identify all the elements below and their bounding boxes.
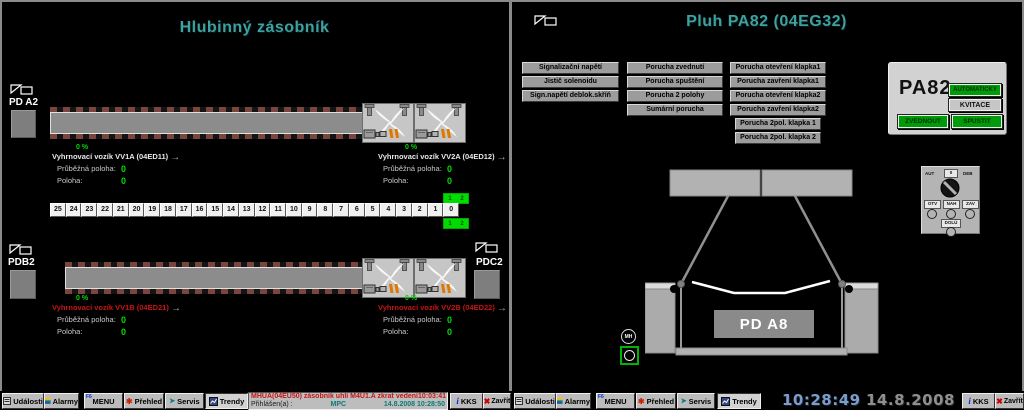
kks-button[interactable]: i KKS bbox=[962, 393, 995, 409]
trends-icon bbox=[209, 397, 218, 406]
close-label: Zavřít bbox=[491, 398, 510, 405]
close-label: Zavřít bbox=[1004, 398, 1023, 405]
scale-cell: 9 bbox=[302, 203, 318, 217]
cart-info-vv2a: 0 % Vyhrnovací vozík VV2A (04ED12) → Prů… bbox=[378, 144, 518, 185]
pos-value: 0 bbox=[121, 327, 126, 336]
scale-cell: 15 bbox=[207, 203, 223, 217]
service-button[interactable]: ➤ Servis bbox=[677, 393, 715, 409]
scale-cell: 7 bbox=[333, 203, 349, 217]
info-icon: i bbox=[456, 396, 459, 406]
beam-right bbox=[762, 170, 852, 196]
scale-cell: 5 bbox=[365, 203, 381, 217]
status-indicator: Jistič solenoidu bbox=[522, 76, 619, 88]
acknowledge-button[interactable]: KVITACE bbox=[948, 98, 1002, 112]
trends-button[interactable]: Trendy bbox=[717, 393, 761, 409]
discharge-carriage-vv2a[interactable] bbox=[414, 103, 466, 143]
close-button[interactable]: ✖ Zavřít bbox=[483, 393, 511, 409]
login-label: Přihlášen(a) : bbox=[251, 401, 293, 409]
service-label: Servis bbox=[177, 397, 200, 406]
zone-2: 2 bbox=[460, 221, 463, 227]
trends-icon bbox=[721, 397, 730, 406]
events-label: Události bbox=[525, 397, 555, 406]
beam-left bbox=[670, 170, 760, 196]
close-button[interactable] bbox=[965, 209, 975, 219]
events-icon bbox=[515, 397, 523, 405]
cart-label: Vyhrnovací vozík VV2A (04ED12) bbox=[378, 152, 495, 161]
status-indicator: Porucha otevření klapka2 bbox=[730, 90, 826, 102]
switch-pos-deb: DEB bbox=[963, 171, 973, 176]
pdb2-box bbox=[10, 270, 36, 299]
conveyor-b-track bbox=[65, 262, 363, 294]
alarms-label: Alarmy bbox=[53, 397, 78, 406]
status-indicator: Porucha otevření klapka1 bbox=[730, 62, 826, 74]
pos-label: Poloha: bbox=[378, 176, 447, 185]
scale-cell: 8 bbox=[317, 203, 333, 217]
direction-arrow-icon: → bbox=[170, 152, 180, 163]
up-label: NAH bbox=[943, 200, 960, 209]
right-panel-title: Pluh PA82 (04EG32) bbox=[512, 13, 1021, 31]
scale-cell: 10 bbox=[286, 203, 302, 217]
pos-current-label: Průběžná poloha: bbox=[378, 164, 447, 173]
kks-button[interactable]: i KKS bbox=[450, 393, 483, 409]
scale-cell: 1 bbox=[428, 203, 444, 217]
events-button[interactable]: Události bbox=[514, 393, 556, 409]
up-button[interactable] bbox=[946, 209, 956, 219]
kks-label: KKS bbox=[973, 397, 989, 406]
pos-current-label: Průběžná poloha: bbox=[52, 164, 121, 173]
cart-label: Vyhrnovací vozík VV1B (04ED21) bbox=[52, 303, 169, 312]
overview-button[interactable]: ✱ Přehled bbox=[124, 393, 164, 409]
discharge-carriage-vv1a[interactable] bbox=[362, 103, 414, 143]
scale-cell: 6 bbox=[349, 203, 365, 217]
login-user: MPC bbox=[330, 401, 346, 409]
kks-label: KKS bbox=[461, 397, 477, 406]
alarm-message: MHUA(04EU50) zásobník uhlí M4U1.A zkrat … bbox=[251, 393, 418, 401]
events-button[interactable]: Události bbox=[2, 393, 44, 409]
scale-cell: 14 bbox=[223, 203, 239, 217]
switch-pos-aut: AUT bbox=[925, 171, 934, 176]
events-icon bbox=[3, 397, 11, 405]
track-ties bbox=[65, 289, 363, 294]
anchor-dot-right bbox=[845, 285, 853, 293]
status-indicator: Porucha zavření klapka2 bbox=[730, 104, 826, 116]
pillar-right bbox=[845, 289, 878, 353]
camera-icon[interactable] bbox=[474, 240, 500, 254]
taskbar: Události Alarmy F6 MENU ✱ Přehled ➤ Serv… bbox=[0, 391, 1024, 410]
login-datetime: 14.8.2008 10:28:50 bbox=[384, 401, 445, 409]
direction-arrow-icon: → bbox=[171, 303, 181, 314]
service-button[interactable]: ➤ Servis bbox=[165, 393, 204, 409]
scale-cell: 18 bbox=[160, 203, 176, 217]
pa82-control-panel: PA82 AUTOMATICKY KVITACE ZVEDNOUT SPUSTI… bbox=[888, 62, 1007, 135]
cart-info-vv2b: 0 % Vyhrnovací vozík VV2B (04ED22) → Prů… bbox=[378, 295, 518, 336]
lamp-indicator bbox=[620, 346, 639, 365]
position-scale: 2524232221201918171615141312111098765432… bbox=[50, 203, 459, 217]
pivot-left bbox=[678, 281, 685, 288]
scale-cell: 23 bbox=[81, 203, 97, 217]
fill-percent: 0 % bbox=[76, 144, 192, 151]
overview-label: Přehled bbox=[647, 397, 675, 406]
open-label: OTV bbox=[924, 200, 941, 209]
zone-marker-bottom: 1 2 bbox=[443, 218, 469, 229]
cart-label: Vyhrnovací vozík VV2B (04ED22) bbox=[378, 303, 495, 312]
conveyor-a-track bbox=[50, 107, 363, 139]
pos-current-label: Průběžná poloha: bbox=[378, 315, 447, 324]
fill-percent: 0 % bbox=[405, 144, 518, 151]
trends-label: Trendy bbox=[732, 397, 757, 406]
scale-cell: 13 bbox=[239, 203, 255, 217]
pillar-left bbox=[645, 289, 675, 353]
pos-value: 0 bbox=[447, 176, 452, 185]
anchor-dot-left bbox=[670, 285, 678, 293]
status-column-faults: Porucha zvednutíPorucha spuštěníPorucha … bbox=[627, 62, 723, 116]
camera-icon[interactable] bbox=[9, 82, 35, 96]
events-label: Události bbox=[13, 397, 43, 406]
track-band bbox=[50, 112, 363, 134]
clock-date: 14.8.2008 bbox=[866, 392, 938, 409]
pos-value: 0 bbox=[447, 327, 452, 336]
close-icon: ✖ bbox=[484, 397, 491, 406]
fill-percent: 0 % bbox=[405, 295, 518, 302]
alarms-icon bbox=[45, 397, 51, 405]
scale-cell: 21 bbox=[113, 203, 129, 217]
status-column-supply: Signalizační napětíJistič solenoiduSign.… bbox=[522, 62, 619, 102]
service-icon: ➤ bbox=[169, 397, 175, 405]
scale-cell: 2 bbox=[412, 203, 428, 217]
status-indicator: Porucha spuštění bbox=[627, 76, 723, 88]
mh-indicator: MH bbox=[621, 329, 636, 344]
alarm-time: 10:03:41 bbox=[418, 393, 446, 401]
menu-label: MENU bbox=[604, 397, 626, 406]
down-button[interactable] bbox=[946, 227, 956, 237]
automatic-mode-button[interactable]: AUTOMATICKY bbox=[948, 83, 1002, 97]
status-column-flaps: Porucha otevření klapka1Porucha zavření … bbox=[730, 62, 826, 144]
pd-a8-box: PD A8 bbox=[714, 310, 814, 338]
scale-cell: 12 bbox=[255, 203, 271, 217]
trends-button[interactable]: Trendy bbox=[205, 393, 248, 409]
alarm-message-box[interactable]: MHUA(04EU50) zásobník uhlí M4U1.A zkrat … bbox=[248, 392, 448, 410]
zone-2: 2 bbox=[460, 196, 463, 202]
status-indicator: Sign.napětí deblok.skříň bbox=[522, 90, 619, 102]
pos-label: Poloha: bbox=[52, 327, 121, 336]
scale-cell: 4 bbox=[380, 203, 396, 217]
open-button[interactable] bbox=[927, 209, 937, 219]
overview-icon: ✱ bbox=[638, 397, 645, 406]
scale-cell: 17 bbox=[176, 203, 192, 217]
menu-button[interactable]: F6 MENU bbox=[84, 393, 123, 409]
device-name: PA82 bbox=[899, 77, 952, 100]
close-icon: ✖ bbox=[996, 397, 1003, 406]
arm-right bbox=[795, 196, 842, 284]
scale-cell: 25 bbox=[50, 203, 66, 217]
track-band bbox=[65, 267, 363, 289]
scale-cell: 19 bbox=[144, 203, 160, 217]
status-indicator: Porucha 2pol. klapka 1 bbox=[735, 118, 821, 130]
pd-a2-box bbox=[11, 110, 36, 138]
overview-button[interactable]: ✱ Přehled bbox=[636, 393, 676, 409]
deblock-switch-panel: AUT 0 DEB OTV NAH ZAV DOLŮ bbox=[921, 166, 980, 234]
cart-info-vv1b: 0 % Vyhrnovací vozík VV1B (04ED21) → Prů… bbox=[52, 295, 192, 336]
scale-cell: 24 bbox=[66, 203, 82, 217]
status-indicator: Signalizační napětí bbox=[522, 62, 619, 74]
pos-current-value: 0 bbox=[121, 315, 126, 324]
status-indicator: Porucha 2pol. klapka 2 bbox=[735, 132, 821, 144]
pos-current-value: 0 bbox=[447, 315, 452, 324]
fill-percent: 0 % bbox=[76, 295, 192, 302]
pos-current-value: 0 bbox=[121, 164, 126, 173]
close-label: ZAV bbox=[962, 200, 979, 209]
f6-key-label: F6 bbox=[598, 394, 604, 400]
service-icon: ➤ bbox=[681, 397, 687, 405]
cart-label: Vyhrnovací vozík VV1A (04ED11) bbox=[52, 152, 168, 161]
scale-cell: 20 bbox=[129, 203, 145, 217]
pdc2-label: PDC2 bbox=[476, 257, 503, 268]
zone-1: 1 bbox=[448, 221, 451, 227]
cart-info-vv1a: 0 % Vyhrnovací vozík VV1A (04ED11) → Prů… bbox=[52, 144, 192, 185]
alarms-button[interactable]: Alarmy bbox=[556, 393, 591, 409]
pos-current-value: 0 bbox=[447, 164, 452, 173]
scale-cell: 22 bbox=[97, 203, 113, 217]
rotary-switch-knob[interactable] bbox=[939, 177, 961, 199]
menu-button[interactable]: F6 MENU bbox=[596, 393, 635, 409]
service-label: Servis bbox=[689, 397, 712, 406]
lamp-icon bbox=[624, 350, 635, 361]
direction-arrow-icon: → bbox=[497, 303, 507, 314]
pos-label: Poloha: bbox=[52, 176, 121, 185]
pivot-right bbox=[839, 281, 846, 288]
scale-cell: 16 bbox=[192, 203, 208, 217]
scale-cell: 3 bbox=[396, 203, 412, 217]
camera-icon[interactable] bbox=[8, 242, 34, 256]
menu-label: MENU bbox=[92, 397, 114, 406]
frame-top bbox=[0, 0, 1024, 2]
scale-cell: 0 bbox=[443, 203, 459, 217]
pd-a2-label: PD A2 bbox=[9, 97, 38, 108]
info-icon: i bbox=[968, 396, 971, 406]
discharge-carriage-vv1b[interactable] bbox=[362, 258, 414, 298]
pos-value: 0 bbox=[121, 176, 126, 185]
status-indicator: Porucha 2 polohy bbox=[627, 90, 723, 102]
plough-blade bbox=[692, 281, 830, 293]
close-button[interactable]: ✖ Zavřít bbox=[995, 393, 1024, 409]
status-indicator: Porucha zavření klapka1 bbox=[730, 76, 826, 88]
scale-cell: 11 bbox=[270, 203, 286, 217]
overview-icon: ✱ bbox=[126, 397, 133, 406]
discharge-carriage-vv2b[interactable] bbox=[414, 258, 466, 298]
track-ties bbox=[50, 134, 363, 139]
motor-icon bbox=[364, 130, 386, 138]
pdb2-label: PDB2 bbox=[8, 257, 35, 268]
overview-label: Přehled bbox=[135, 397, 163, 406]
raise-button[interactable]: ZVEDNOUT bbox=[897, 114, 949, 129]
pos-current-label: Průběžná poloha: bbox=[52, 315, 121, 324]
alarms-icon bbox=[557, 397, 563, 405]
status-indicator: Porucha zvednutí bbox=[627, 62, 723, 74]
start-button[interactable]: SPUSTIT bbox=[951, 114, 1003, 129]
direction-arrow-icon: → bbox=[497, 152, 507, 163]
clock-time: 10:28:49 bbox=[782, 392, 852, 409]
pos-label: Poloha: bbox=[378, 327, 447, 336]
base-bar bbox=[676, 348, 847, 355]
left-panel-title: Hlubinný zásobník bbox=[0, 19, 509, 37]
frame-left bbox=[0, 0, 2, 391]
alarms-label: Alarmy bbox=[565, 397, 590, 406]
f6-key-label: F6 bbox=[86, 394, 92, 400]
zone-1: 1 bbox=[448, 196, 451, 202]
alarms-button[interactable]: Alarmy bbox=[44, 393, 79, 409]
camera-icon[interactable] bbox=[533, 13, 559, 27]
trends-label: Trendy bbox=[220, 397, 245, 406]
arm-left bbox=[681, 196, 728, 284]
status-indicator: Sumární porucha bbox=[627, 104, 723, 116]
